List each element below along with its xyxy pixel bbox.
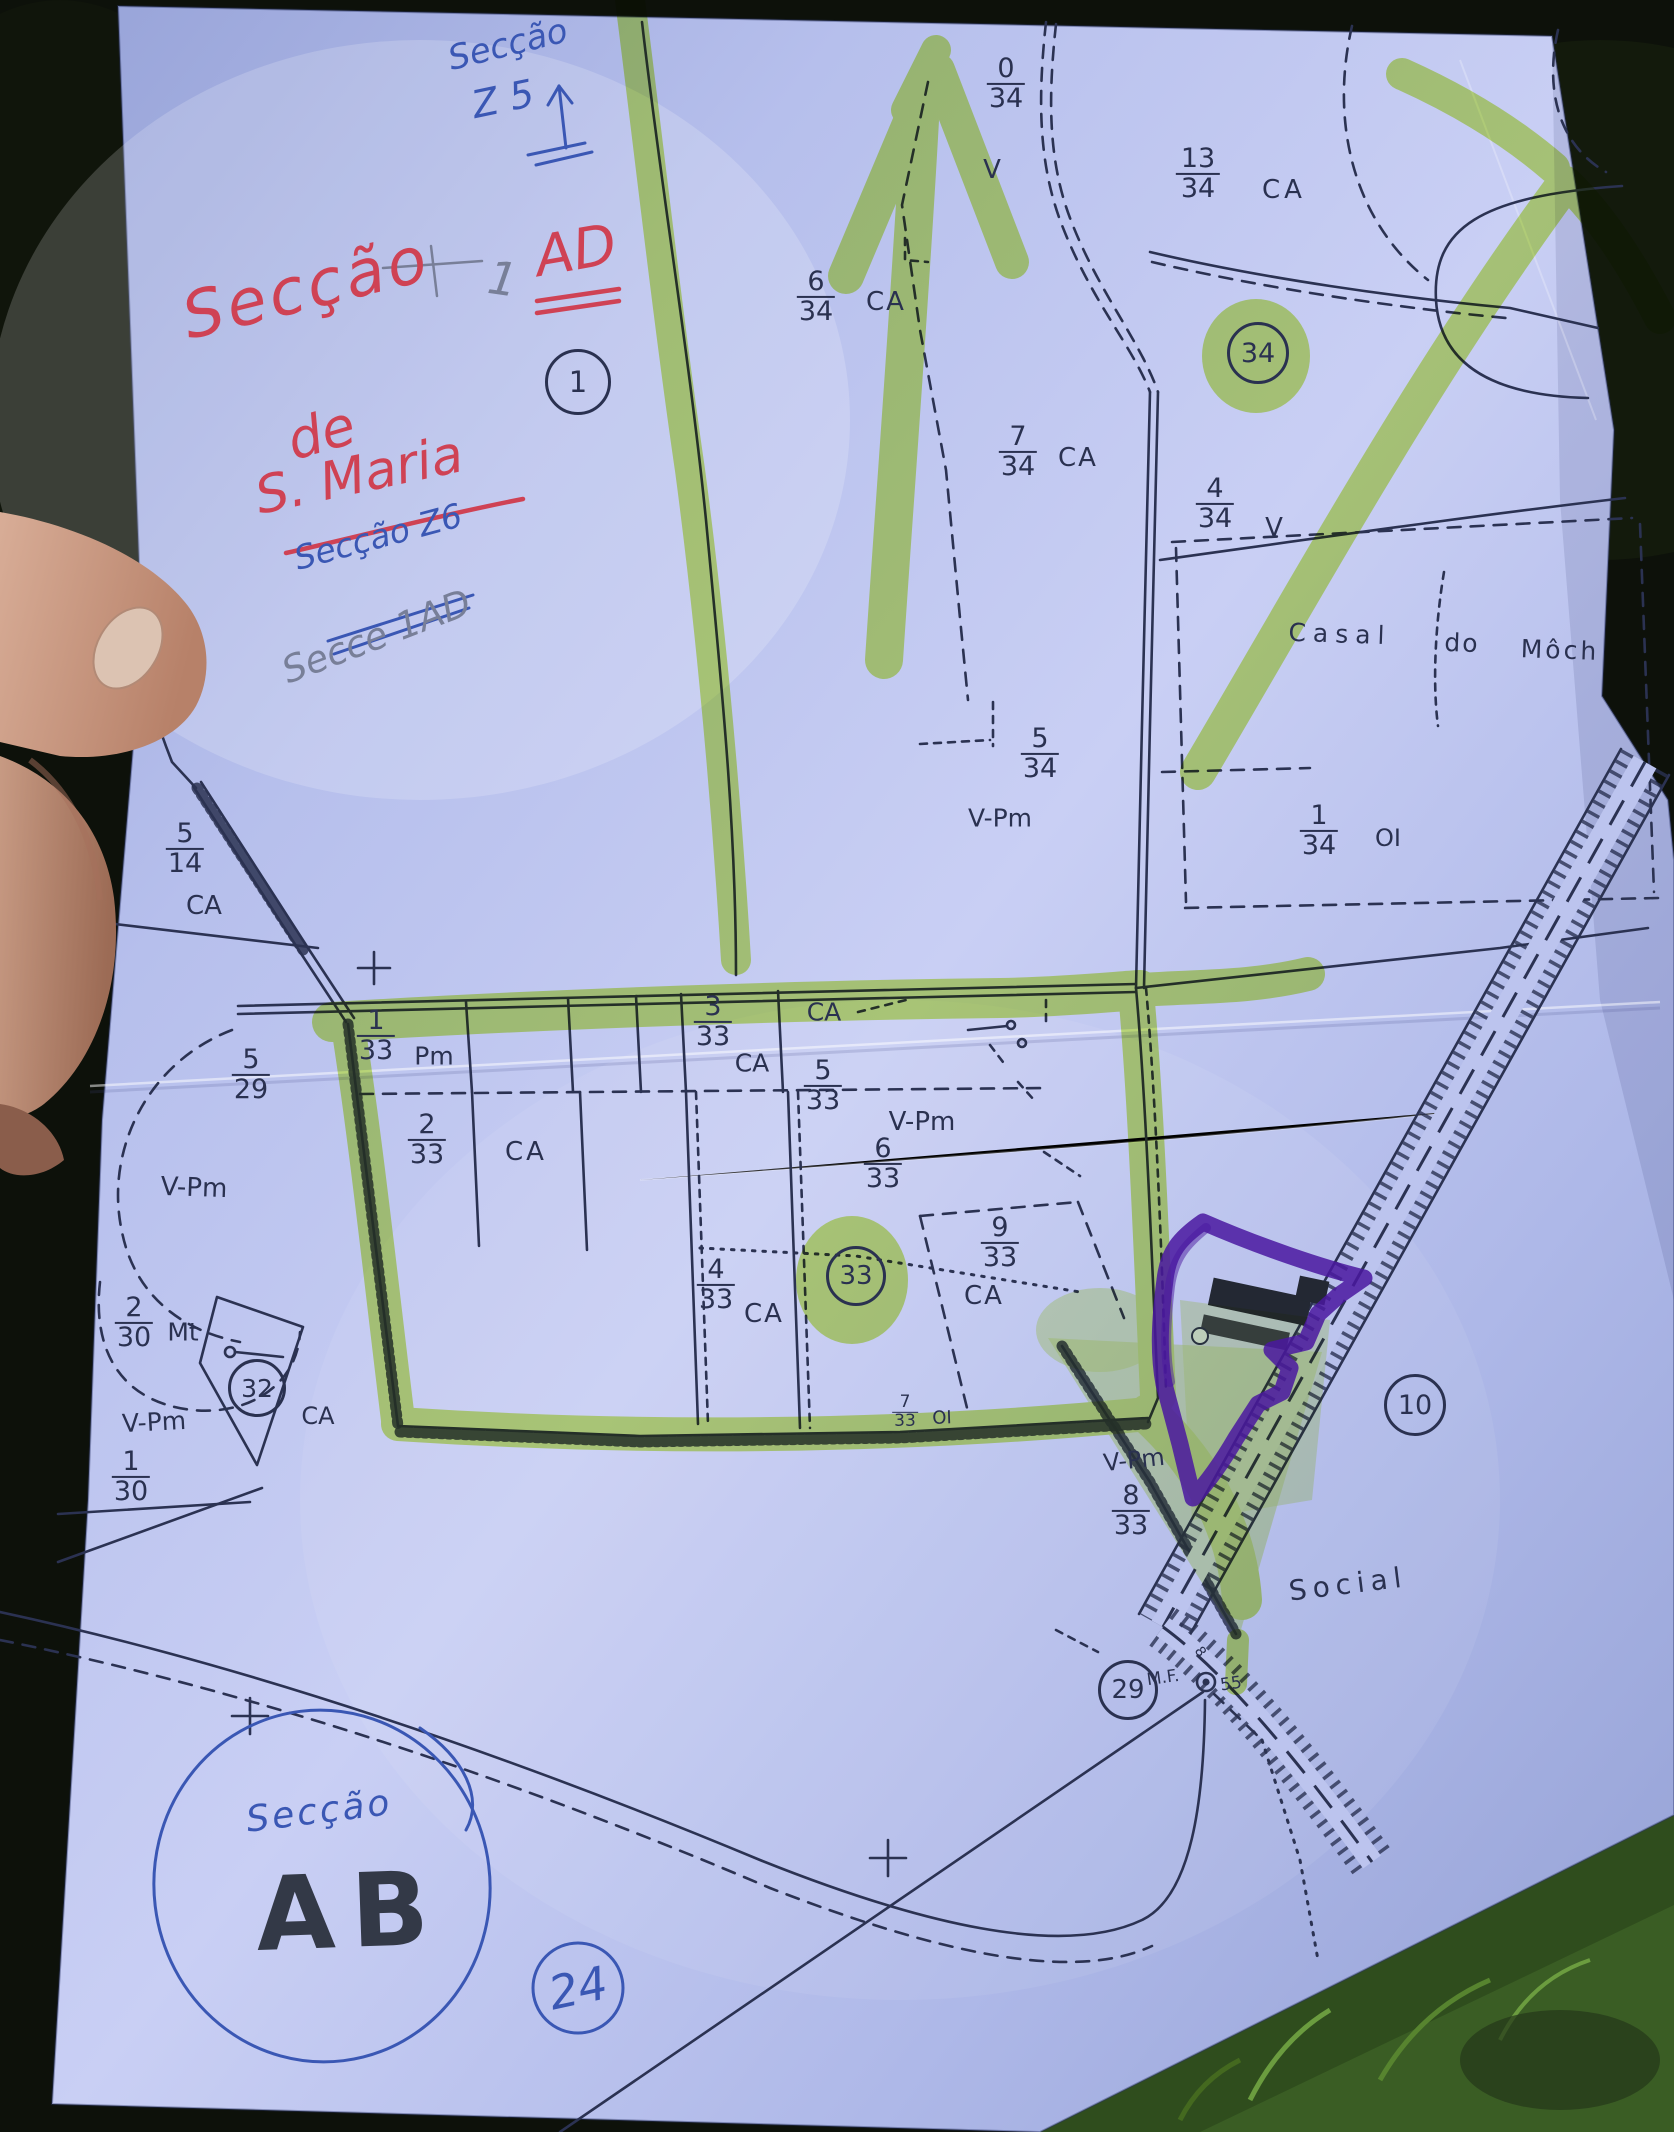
section-ab-stamp: AB bbox=[254, 1849, 447, 1975]
red-note-seccao: Secção bbox=[175, 222, 438, 355]
photo-of-cadastral-map: 0 34 13 34 6 34 7 34 4 34 5 34 1 34 5 bbox=[0, 0, 1674, 2132]
circled-24-number: 24 bbox=[544, 1956, 612, 2021]
bottom-seccao-handwritten: Secção bbox=[244, 1782, 395, 1841]
red-note-ad: AD bbox=[530, 212, 621, 290]
handwriting-layer: Secção Z 5 Secção AD 1 de S. Maria Secçã… bbox=[0, 0, 1674, 2132]
pencil-one: 1 bbox=[484, 250, 521, 308]
pencil-note-secce-1ad: Secce 1AD bbox=[276, 581, 477, 692]
blue-note-seccao-z5-line2: Z 5 bbox=[468, 71, 538, 127]
blue-note-seccao-z5-line1: Secção bbox=[444, 11, 572, 79]
